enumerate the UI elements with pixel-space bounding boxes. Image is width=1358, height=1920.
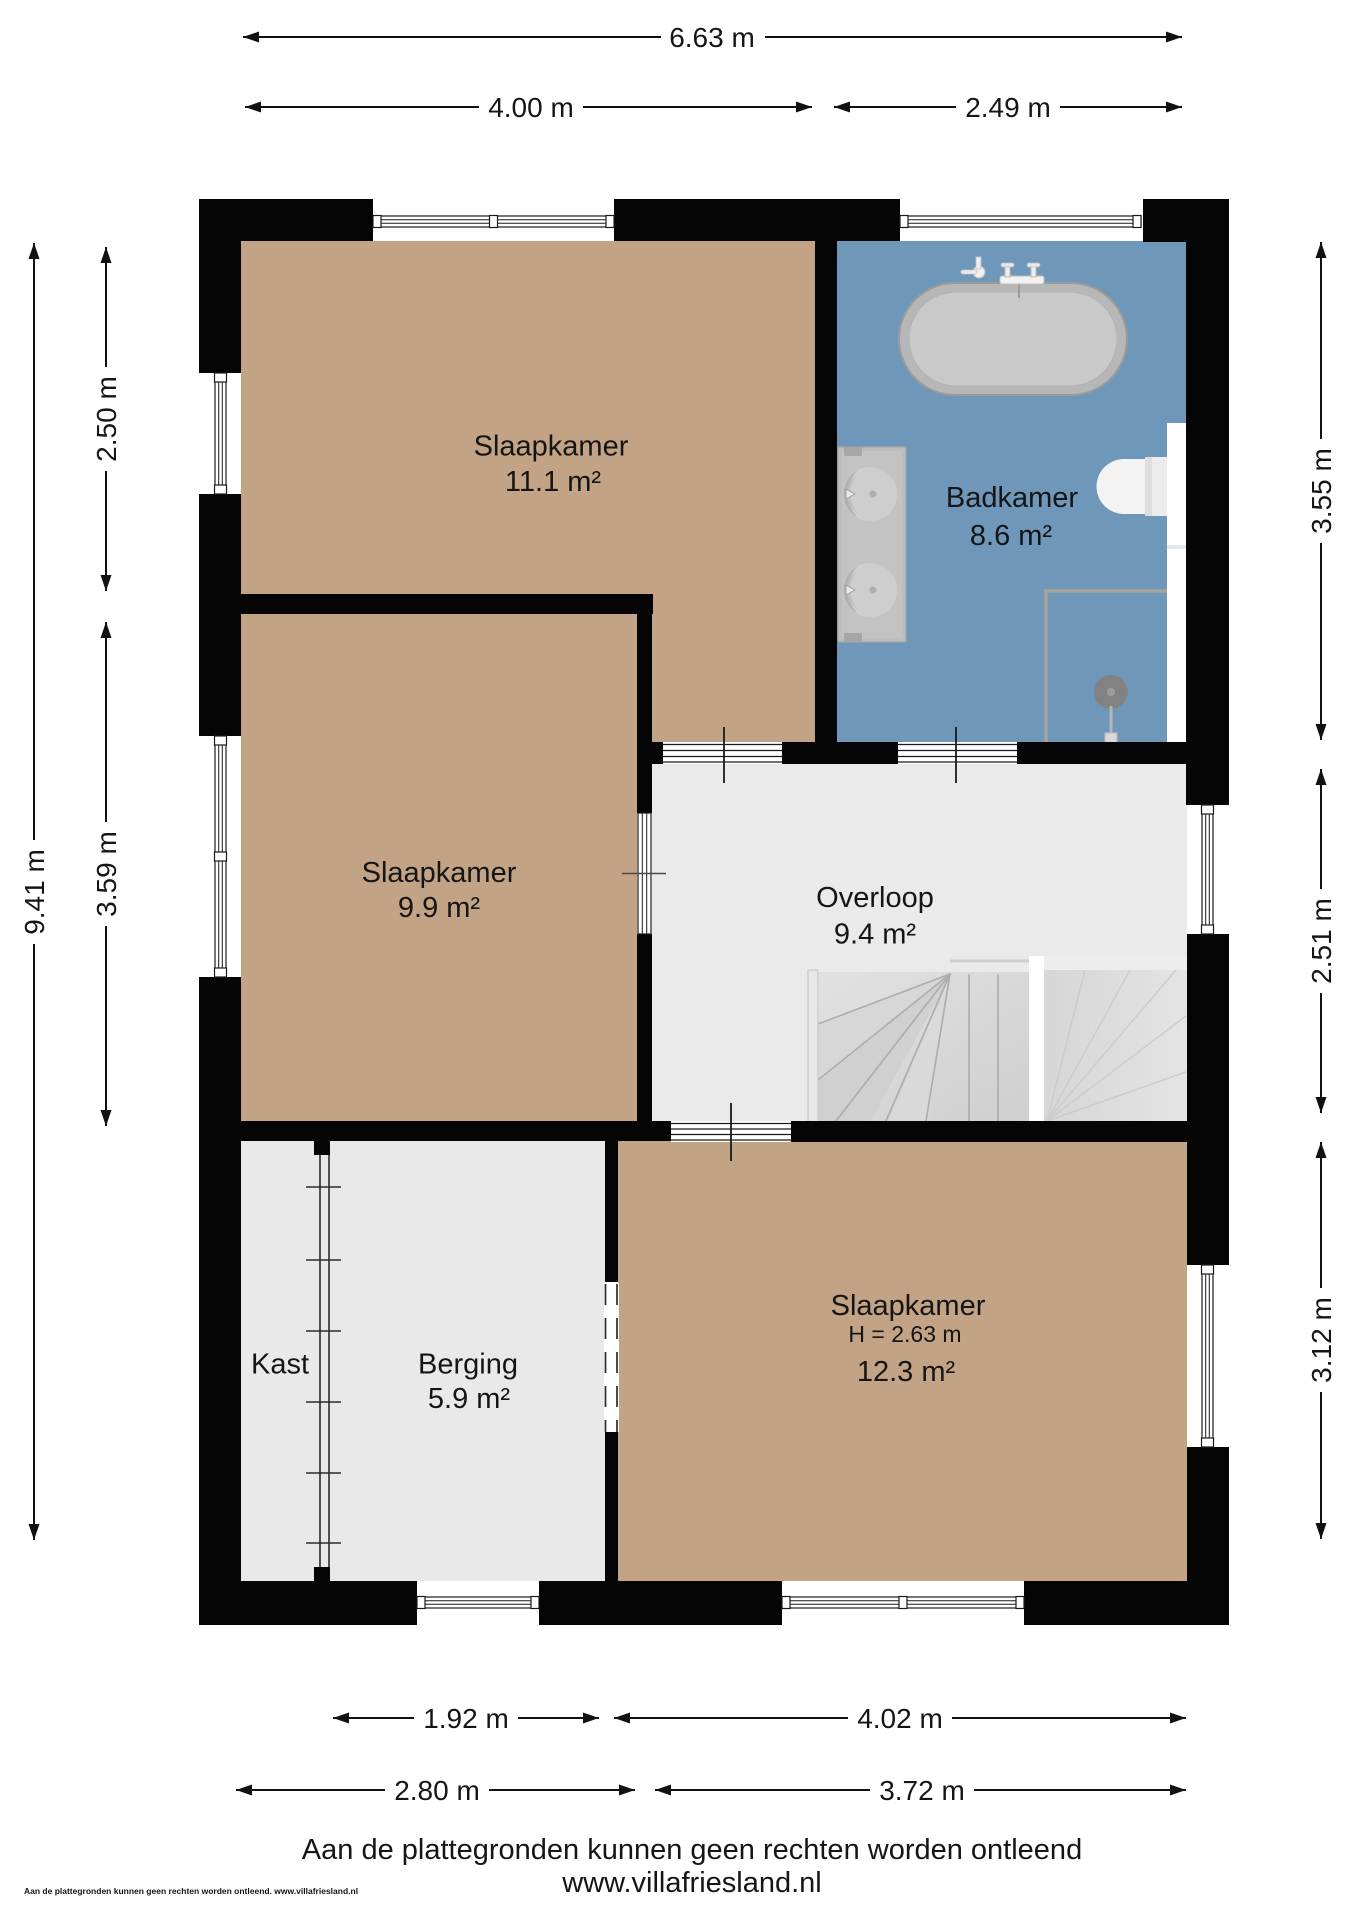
svg-text:2.80 m: 2.80 m <box>394 1775 480 1806</box>
svg-text:4.00 m: 4.00 m <box>488 92 574 123</box>
svg-text:Badkamer: Badkamer <box>946 482 1079 514</box>
svg-text:2.49 m: 2.49 m <box>965 92 1051 123</box>
svg-text:9.41 m: 9.41 m <box>19 849 50 935</box>
svg-text:Kast: Kast <box>251 1349 309 1381</box>
svg-text:9.4 m²: 9.4 m² <box>834 919 917 951</box>
svg-text:Overloop: Overloop <box>816 882 934 914</box>
svg-text:3.59 m: 3.59 m <box>91 831 122 917</box>
svg-text:Slaapkamer: Slaapkamer <box>474 431 629 463</box>
svg-text:Aan de plattegronden kunnen ge: Aan de plattegronden kunnen geen rechten… <box>302 1834 1082 1866</box>
svg-text:3.55 m: 3.55 m <box>1306 448 1337 534</box>
svg-text:Aan de plattegronden kunnen ge: Aan de plattegronden kunnen geen rechten… <box>24 1886 358 1896</box>
svg-text:www.villafriesland.nl: www.villafriesland.nl <box>561 1867 822 1899</box>
svg-text:Slaapkamer: Slaapkamer <box>831 1290 986 1322</box>
svg-text:9.9 m²: 9.9 m² <box>398 892 481 924</box>
svg-text:12.3 m²: 12.3 m² <box>857 1356 956 1388</box>
svg-text:2.51 m: 2.51 m <box>1306 898 1337 984</box>
svg-text:1.92 m: 1.92 m <box>423 1703 509 1734</box>
svg-text:5.9 m²: 5.9 m² <box>428 1383 511 1415</box>
svg-text:3.72 m: 3.72 m <box>879 1775 965 1806</box>
svg-text:3.12 m: 3.12 m <box>1306 1297 1337 1383</box>
svg-text:Berging: Berging <box>418 1349 518 1381</box>
svg-text:6.63 m: 6.63 m <box>669 22 755 53</box>
svg-text:H = 2.63 m: H = 2.63 m <box>848 1321 961 1347</box>
svg-text:Slaapkamer: Slaapkamer <box>362 857 517 889</box>
svg-text:11.1 m²: 11.1 m² <box>505 466 602 498</box>
svg-text:4.02 m: 4.02 m <box>857 1703 943 1734</box>
svg-text:2.50 m: 2.50 m <box>91 376 122 462</box>
svg-text:8.6 m²: 8.6 m² <box>970 520 1053 552</box>
